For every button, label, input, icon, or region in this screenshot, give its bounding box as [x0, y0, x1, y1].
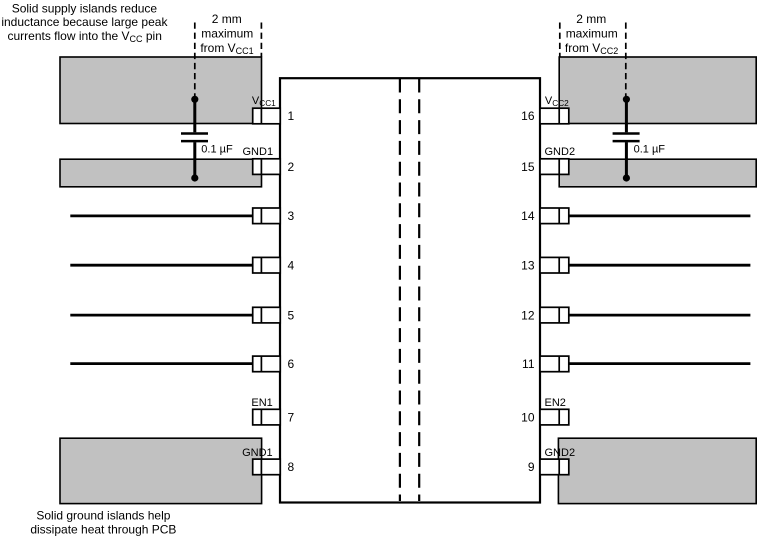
svg-text:5: 5	[288, 308, 295, 322]
svg-text:2 mm: 2 mm	[576, 12, 606, 26]
svg-text:2 mm: 2 mm	[212, 12, 242, 26]
svg-text:2: 2	[288, 160, 295, 174]
svg-text:maximum: maximum	[201, 27, 253, 41]
svg-text:10: 10	[521, 410, 535, 424]
svg-text:6: 6	[288, 357, 295, 371]
svg-text:9: 9	[528, 460, 535, 474]
svg-text:16: 16	[521, 109, 535, 123]
svg-text:GND2: GND2	[545, 447, 576, 459]
svg-text:15: 15	[521, 160, 535, 174]
svg-text:1: 1	[288, 109, 295, 123]
svg-text:4: 4	[288, 258, 295, 272]
svg-text:0.1 µF: 0.1 µF	[201, 143, 233, 155]
svg-text:14: 14	[521, 209, 535, 223]
svg-text:GND1: GND1	[243, 146, 274, 158]
svg-text:7: 7	[288, 410, 295, 424]
svg-text:0.1 µF: 0.1 µF	[634, 143, 666, 155]
svg-text:12: 12	[521, 308, 535, 322]
svg-text:GND1: GND1	[242, 447, 273, 459]
svg-text:GND2: GND2	[545, 146, 576, 158]
svg-text:Solid ground islands help: Solid ground islands help	[36, 508, 170, 522]
svg-text:8: 8	[288, 460, 295, 474]
svg-text:13: 13	[521, 258, 535, 272]
svg-text:Solid supply islands reduce: Solid supply islands reduce	[12, 1, 158, 15]
svg-text:3: 3	[288, 209, 295, 223]
svg-text:EN1: EN1	[251, 397, 272, 409]
svg-text:maximum: maximum	[566, 27, 618, 41]
svg-text:inductance because large peak: inductance because large peak	[1, 15, 168, 29]
svg-text:11: 11	[522, 357, 535, 371]
svg-text:EN2: EN2	[545, 397, 566, 409]
svg-text:dissipate heat through PCB: dissipate heat through PCB	[30, 523, 176, 537]
